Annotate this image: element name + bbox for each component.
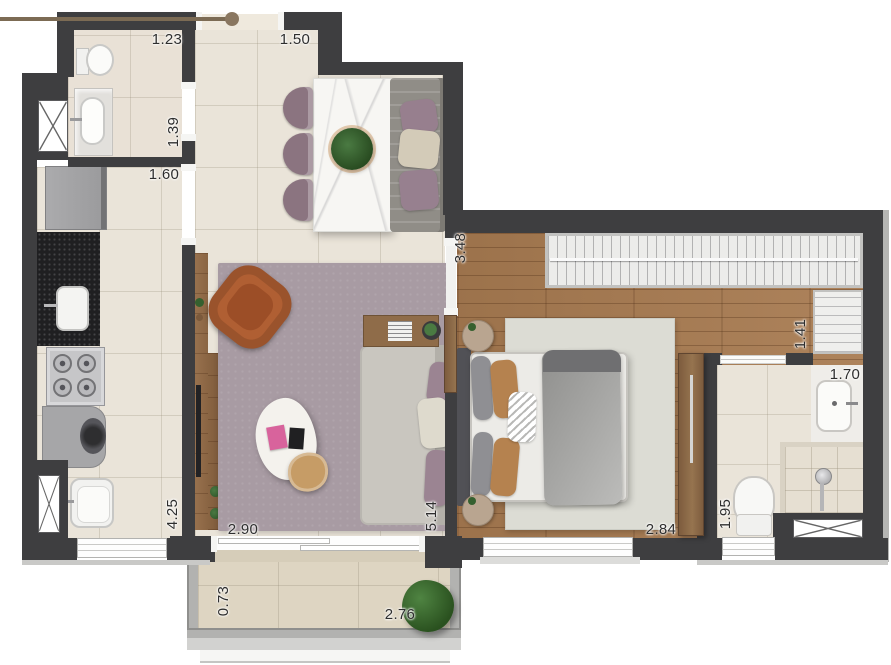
magazine-pink bbox=[266, 425, 288, 451]
wall-east-trim bbox=[883, 210, 889, 562]
entrance-jamb bbox=[278, 12, 284, 30]
kitchen-window bbox=[77, 538, 167, 558]
bed-blanket-fold bbox=[543, 350, 621, 372]
fridge bbox=[45, 166, 107, 230]
dim-balcony-depth: 0.73 bbox=[216, 583, 232, 619]
kitchen-faucet bbox=[44, 304, 58, 307]
shower-stem bbox=[820, 483, 824, 511]
balcony-door-jamb bbox=[419, 536, 425, 552]
wall-divider-c bbox=[182, 243, 195, 540]
dim-bedroom-depth: 3.48 bbox=[453, 230, 469, 266]
dim-entry-width: 1.50 bbox=[277, 32, 313, 48]
barn-door-handle bbox=[690, 375, 693, 463]
table-centerpiece-plant bbox=[331, 128, 373, 170]
dim-closet-depth: 1.41 bbox=[793, 316, 809, 352]
dim-kitchen-width: 1.60 bbox=[146, 167, 182, 183]
burner bbox=[53, 378, 72, 397]
dim-living-length: 5.14 bbox=[424, 498, 440, 534]
bench-pillow bbox=[397, 128, 441, 170]
bench-pillow bbox=[398, 168, 439, 211]
balcony-slab-edge bbox=[187, 638, 461, 650]
wall-west bbox=[22, 160, 37, 462]
nightstand bbox=[462, 320, 494, 352]
nightstand-plant bbox=[468, 323, 476, 331]
sideboard-deco-plant bbox=[195, 298, 204, 307]
bed-blanket bbox=[542, 349, 623, 505]
dim-bedroom-width: 2.84 bbox=[643, 522, 679, 538]
dim-living-width: 2.90 bbox=[225, 522, 261, 538]
wall-living-south-west bbox=[170, 536, 215, 562]
sideboard-deco bbox=[196, 314, 203, 321]
balcony-slab-lower bbox=[200, 650, 450, 663]
dim-bathroom-width: 1.70 bbox=[827, 367, 863, 383]
bath-sink bbox=[816, 380, 852, 432]
lavabo-basin bbox=[80, 97, 105, 145]
dim-lavabo-width: 1.23 bbox=[149, 32, 185, 48]
washer-door bbox=[80, 418, 106, 454]
balcony-railing-left bbox=[187, 558, 198, 634]
wall-bedroom-north bbox=[445, 210, 863, 233]
entrance-door-leaf bbox=[0, 17, 232, 21]
entrance-jamb bbox=[196, 12, 202, 30]
burner bbox=[77, 354, 96, 373]
wall-kitchen-south-a bbox=[22, 538, 77, 562]
tablet-black bbox=[288, 428, 304, 450]
burner bbox=[77, 378, 96, 397]
stove-burners bbox=[48, 349, 101, 402]
wall-south-trim bbox=[22, 560, 210, 565]
wall-entry-left bbox=[57, 12, 74, 77]
closet bbox=[813, 290, 863, 354]
kitchen-entry-jamb bbox=[181, 164, 196, 171]
bedroom-window bbox=[483, 537, 633, 557]
wall-step-vertical bbox=[318, 28, 342, 75]
bathroom-door-track bbox=[720, 355, 786, 364]
wardrobe-rail bbox=[550, 258, 858, 261]
bath-faucet-dot bbox=[832, 401, 837, 406]
wall-bath-south-trim bbox=[697, 560, 888, 565]
wall-dining-east bbox=[443, 62, 463, 215]
dim-kitchen-length: 4.25 bbox=[165, 496, 181, 532]
bath-toilet-tank bbox=[736, 514, 772, 536]
lavabo-door-jamb bbox=[181, 134, 196, 141]
headboard bbox=[457, 348, 471, 506]
wall-bath-north-b bbox=[786, 353, 813, 365]
bathroom-window bbox=[722, 537, 775, 556]
wall-bedroom-south-b bbox=[633, 538, 722, 560]
shaft-box bbox=[38, 100, 68, 152]
bedroom-window-sill bbox=[480, 557, 640, 564]
nightstand bbox=[462, 494, 494, 526]
wall-east bbox=[863, 210, 883, 560]
tv bbox=[196, 385, 201, 477]
lavabo-toilet-bowl bbox=[86, 44, 114, 76]
floor-plan: 1.23 1.50 1.39 1.60 3.48 1.41 1.70 4.25 … bbox=[0, 0, 891, 665]
balcony-door-panel bbox=[300, 545, 420, 551]
kitchen-sink bbox=[56, 286, 89, 331]
lavabo-door-jamb bbox=[181, 82, 196, 89]
burner bbox=[53, 354, 72, 373]
wall-bath-south bbox=[775, 538, 888, 560]
console-bowl-plant bbox=[422, 321, 441, 340]
console-book bbox=[388, 321, 412, 341]
shaft-box bbox=[38, 475, 60, 533]
bed-pillow-zigzag bbox=[507, 392, 537, 443]
bath-faucet bbox=[846, 402, 858, 405]
dim-lavabo-depth: 1.39 bbox=[166, 114, 182, 150]
balcony-door-jamb bbox=[211, 536, 217, 552]
nightstand-plant bbox=[468, 497, 476, 505]
shaft-box bbox=[793, 519, 863, 538]
dim-balcony-width: 2.76 bbox=[382, 607, 418, 623]
balcony-door-panel bbox=[218, 538, 330, 544]
laundry-tub-basin bbox=[77, 486, 110, 523]
dim-bathroom-length: 1.95 bbox=[718, 496, 734, 532]
kitchen-entry-jamb bbox=[181, 238, 196, 245]
wall-top-lavabo bbox=[57, 12, 202, 30]
bed-pillow-caramel bbox=[490, 437, 521, 497]
lavabo-faucet bbox=[70, 118, 82, 121]
wall-living-south-east bbox=[425, 536, 462, 568]
entrance-door-knob bbox=[225, 12, 239, 26]
bedroom-sliding-door bbox=[444, 315, 457, 393]
